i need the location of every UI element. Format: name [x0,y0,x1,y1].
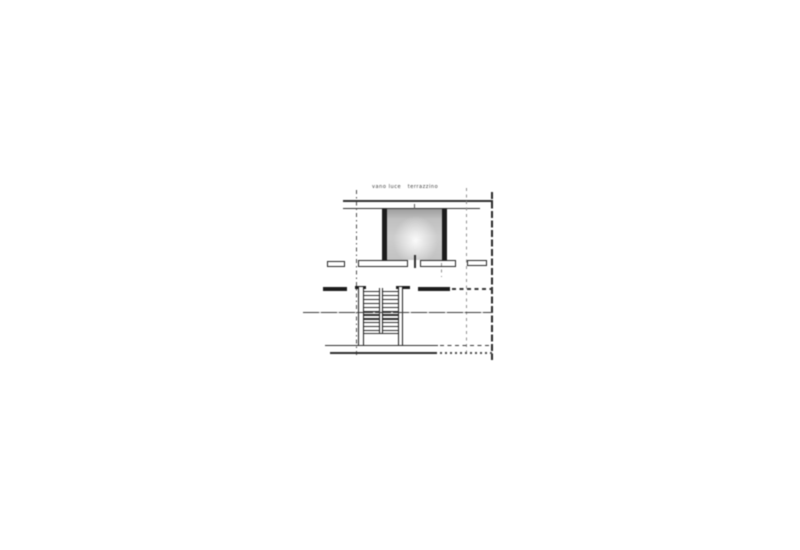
stair-tread [364,314,380,315]
stair-tread [364,326,380,327]
bottom-wall-line-lower [330,352,437,354]
stair-tread [383,307,398,308]
stair-tread [364,291,380,292]
stair-tread [383,326,398,327]
stair-tread [383,295,398,296]
scanned-page: vano luce terrazzino [0,0,800,550]
stair-tread [364,322,380,323]
stair-tread [383,303,398,304]
stair-tread [383,318,398,319]
bottom-wall-line-lower-dotted [440,352,493,354]
stair-tread [364,295,380,296]
floor-plan-drawing: vano luce terrazzino [0,0,800,550]
stair-tread [364,318,380,319]
stair-tread [383,299,398,300]
staircase-treads [0,0,800,550]
bottom-wall-line-upper [325,345,438,347]
bottom-wall-line-upper-dashed [440,345,493,347]
stair-tread [383,322,398,323]
stair-tread [383,314,398,315]
stair-tread [364,330,380,331]
stair-tread [364,307,380,308]
section-cut-line [303,312,493,313]
stair-tread [383,330,398,331]
stair-tread [383,291,398,292]
stair-tread [364,303,380,304]
stair-landing-edge [364,333,399,334]
stair-tread [364,299,380,300]
